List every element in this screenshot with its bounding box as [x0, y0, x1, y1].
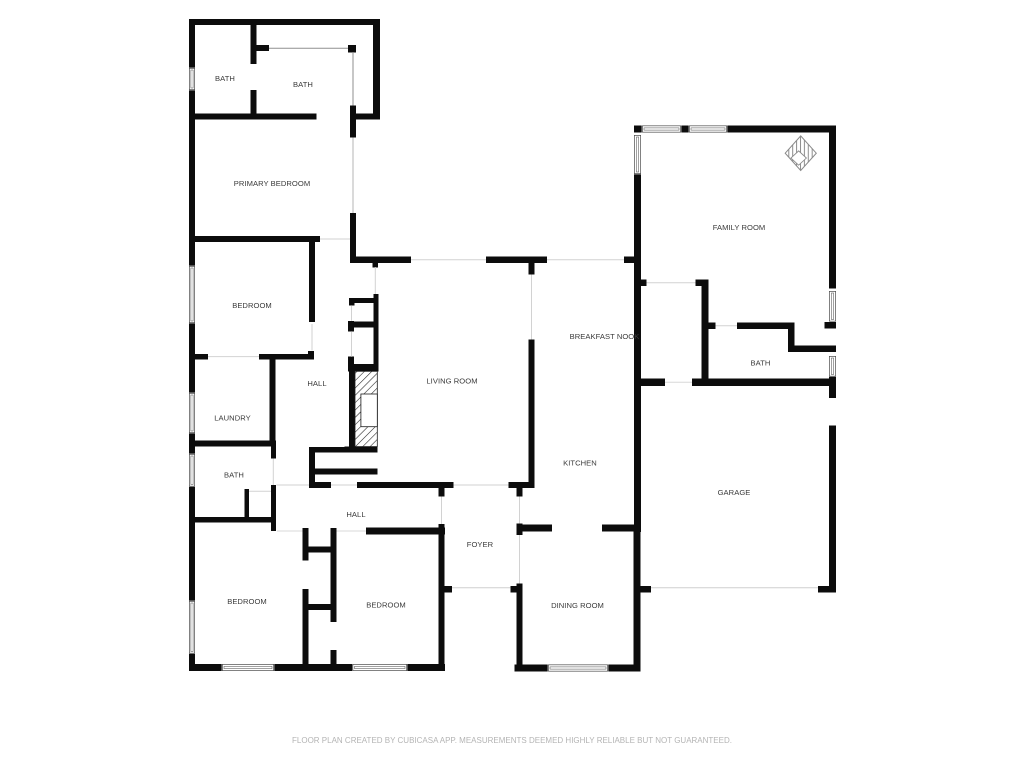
svg-text:FAMILY ROOM: FAMILY ROOM	[713, 223, 766, 232]
svg-text:BEDROOM: BEDROOM	[227, 597, 267, 606]
svg-text:BATH: BATH	[293, 80, 313, 89]
svg-text:LIVING ROOM: LIVING ROOM	[426, 377, 477, 386]
svg-text:BEDROOM: BEDROOM	[232, 301, 272, 310]
svg-text:FOYER: FOYER	[467, 540, 494, 549]
svg-text:FLOOR PLAN CREATED BY CUBICASA: FLOOR PLAN CREATED BY CUBICASA APP. MEAS…	[292, 736, 732, 745]
svg-text:BEDROOM: BEDROOM	[366, 601, 406, 610]
svg-text:PRIMARY BEDROOM: PRIMARY BEDROOM	[234, 179, 310, 188]
svg-text:LAUNDRY: LAUNDRY	[214, 414, 251, 423]
svg-text:KITCHEN: KITCHEN	[563, 459, 597, 468]
svg-text:HALL: HALL	[346, 510, 365, 519]
svg-text:BATH: BATH	[751, 358, 771, 367]
svg-text:DINING ROOM: DINING ROOM	[551, 601, 604, 610]
svg-text:HALL: HALL	[307, 379, 326, 388]
svg-text:GARAGE: GARAGE	[718, 488, 751, 497]
svg-text:BATH: BATH	[224, 471, 244, 480]
svg-text:BATH: BATH	[215, 74, 235, 83]
svg-text:BREAKFAST NOOK: BREAKFAST NOOK	[570, 332, 640, 341]
